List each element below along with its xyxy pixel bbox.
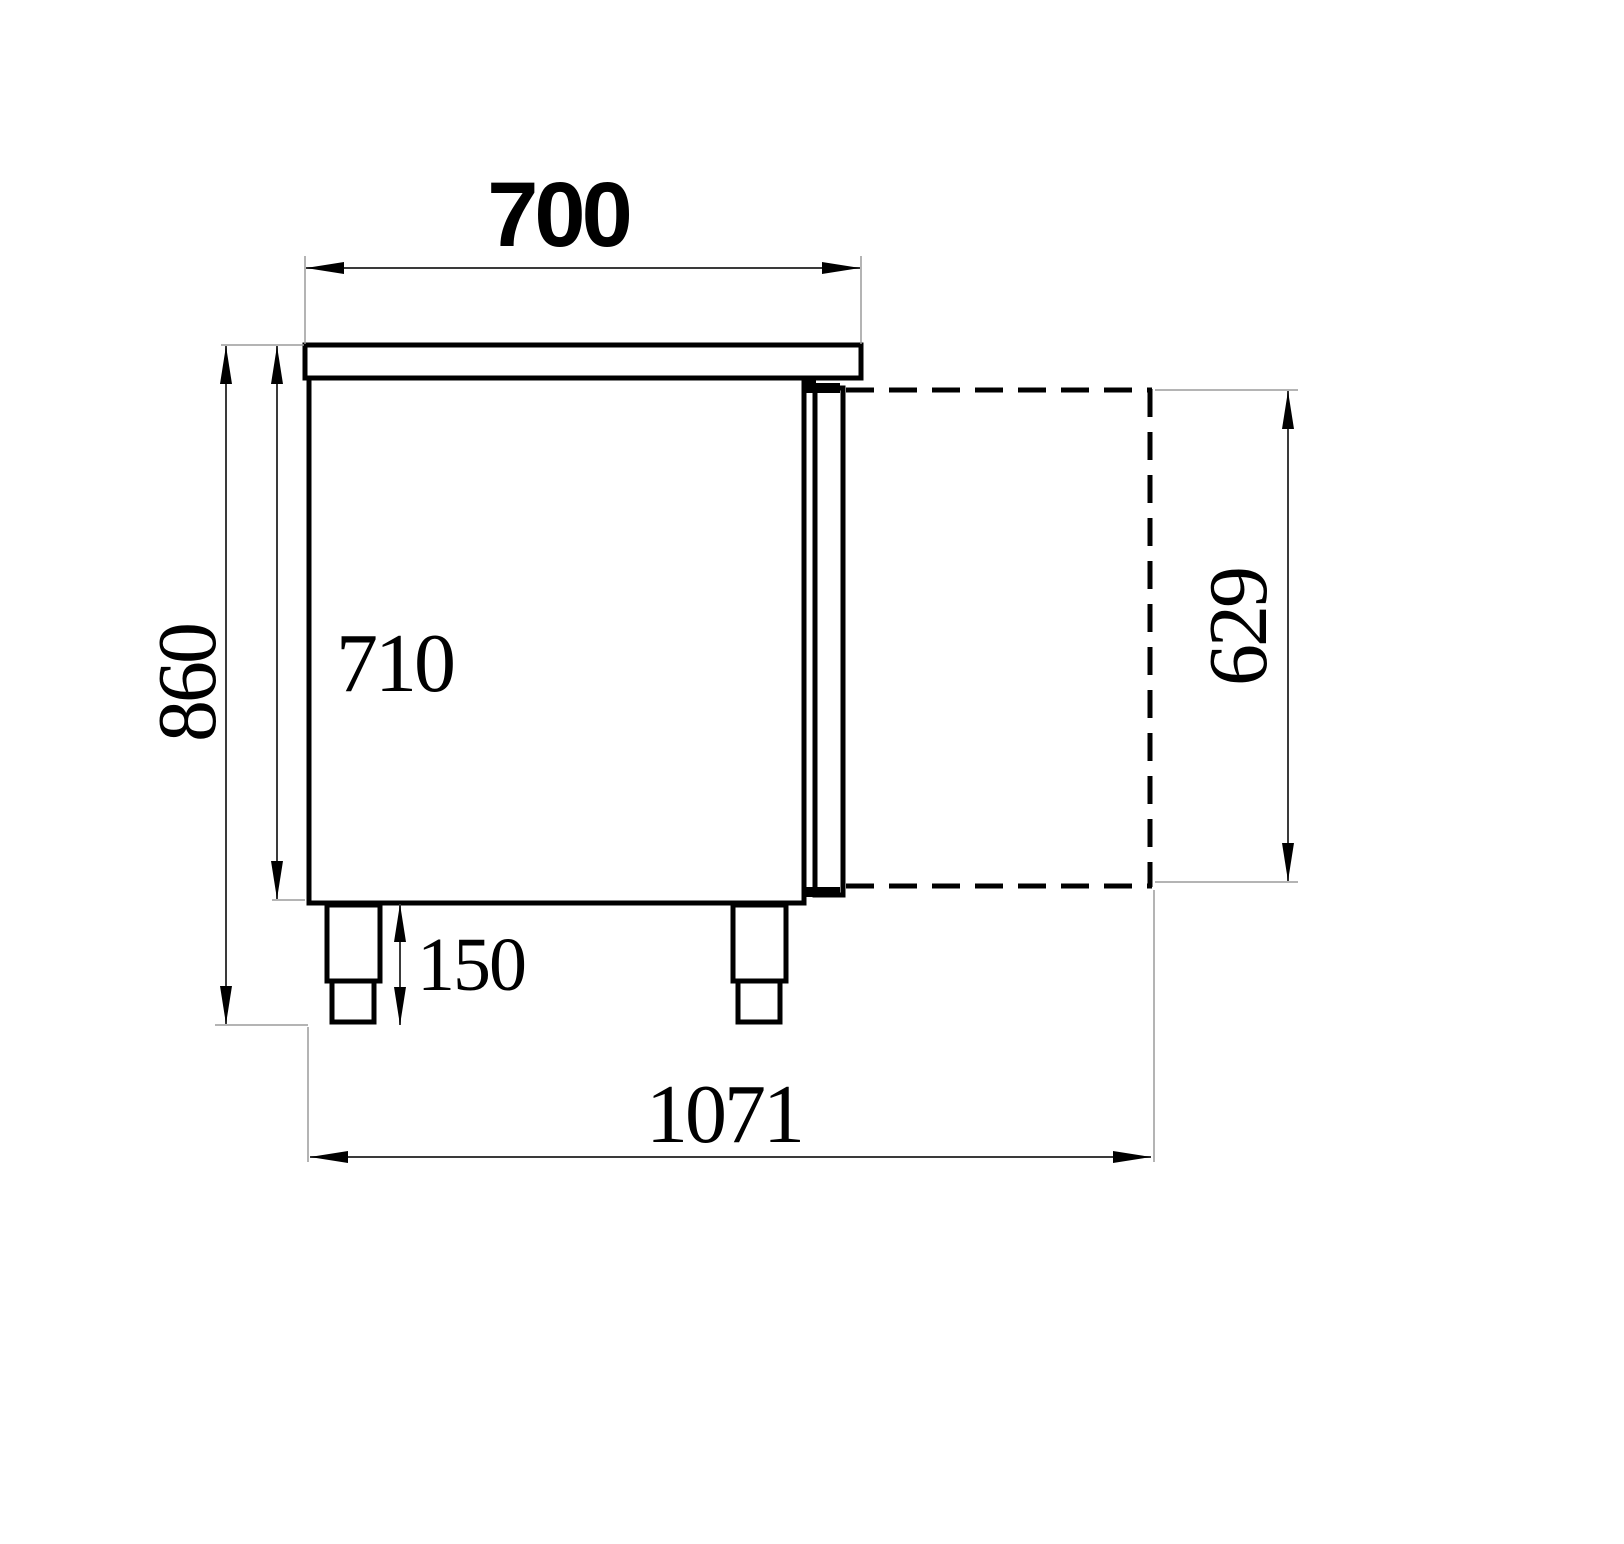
label-top-width-700: 700 xyxy=(487,164,629,266)
countertop-slab xyxy=(305,345,861,378)
rear-leg-foot xyxy=(738,981,780,1022)
label-leg-height-150: 150 xyxy=(417,923,525,1007)
label-body-height-710: 710 xyxy=(336,617,453,710)
arrow-150-bottom xyxy=(394,987,406,1025)
arrow-710-top xyxy=(271,346,283,384)
arrow-150-top xyxy=(394,904,406,942)
label-door-open-depth-629: 629 xyxy=(1192,569,1285,686)
arrow-1071-right xyxy=(1113,1151,1151,1163)
arrow-860-top xyxy=(220,346,232,384)
door-hinge-top xyxy=(806,383,840,393)
door-open-dashed-box xyxy=(846,389,1152,887)
cabinet-side-view-drawing: 700 860 710 150 629 1071 xyxy=(0,0,1624,1544)
front-leg-foot xyxy=(332,981,374,1022)
arrow-700-right xyxy=(822,262,860,274)
arrow-629-top xyxy=(1282,391,1294,429)
rear-leg-upper xyxy=(733,905,786,981)
technical-drawing-canvas: 700 860 710 150 629 1071 xyxy=(0,0,1624,1544)
label-total-depth-1071: 1071 xyxy=(646,1068,802,1161)
arrow-1071-left xyxy=(310,1151,348,1163)
label-total-height-860: 860 xyxy=(141,625,234,742)
front-leg-upper xyxy=(327,905,380,981)
arrow-629-bottom xyxy=(1282,843,1294,881)
arrow-860-bottom xyxy=(220,986,232,1024)
door-closed-profile xyxy=(815,388,843,895)
worktop-ledge xyxy=(802,376,816,383)
door-hinge-bottom xyxy=(806,887,840,897)
arrow-700-left xyxy=(306,262,344,274)
arrow-710-bottom xyxy=(271,861,283,899)
